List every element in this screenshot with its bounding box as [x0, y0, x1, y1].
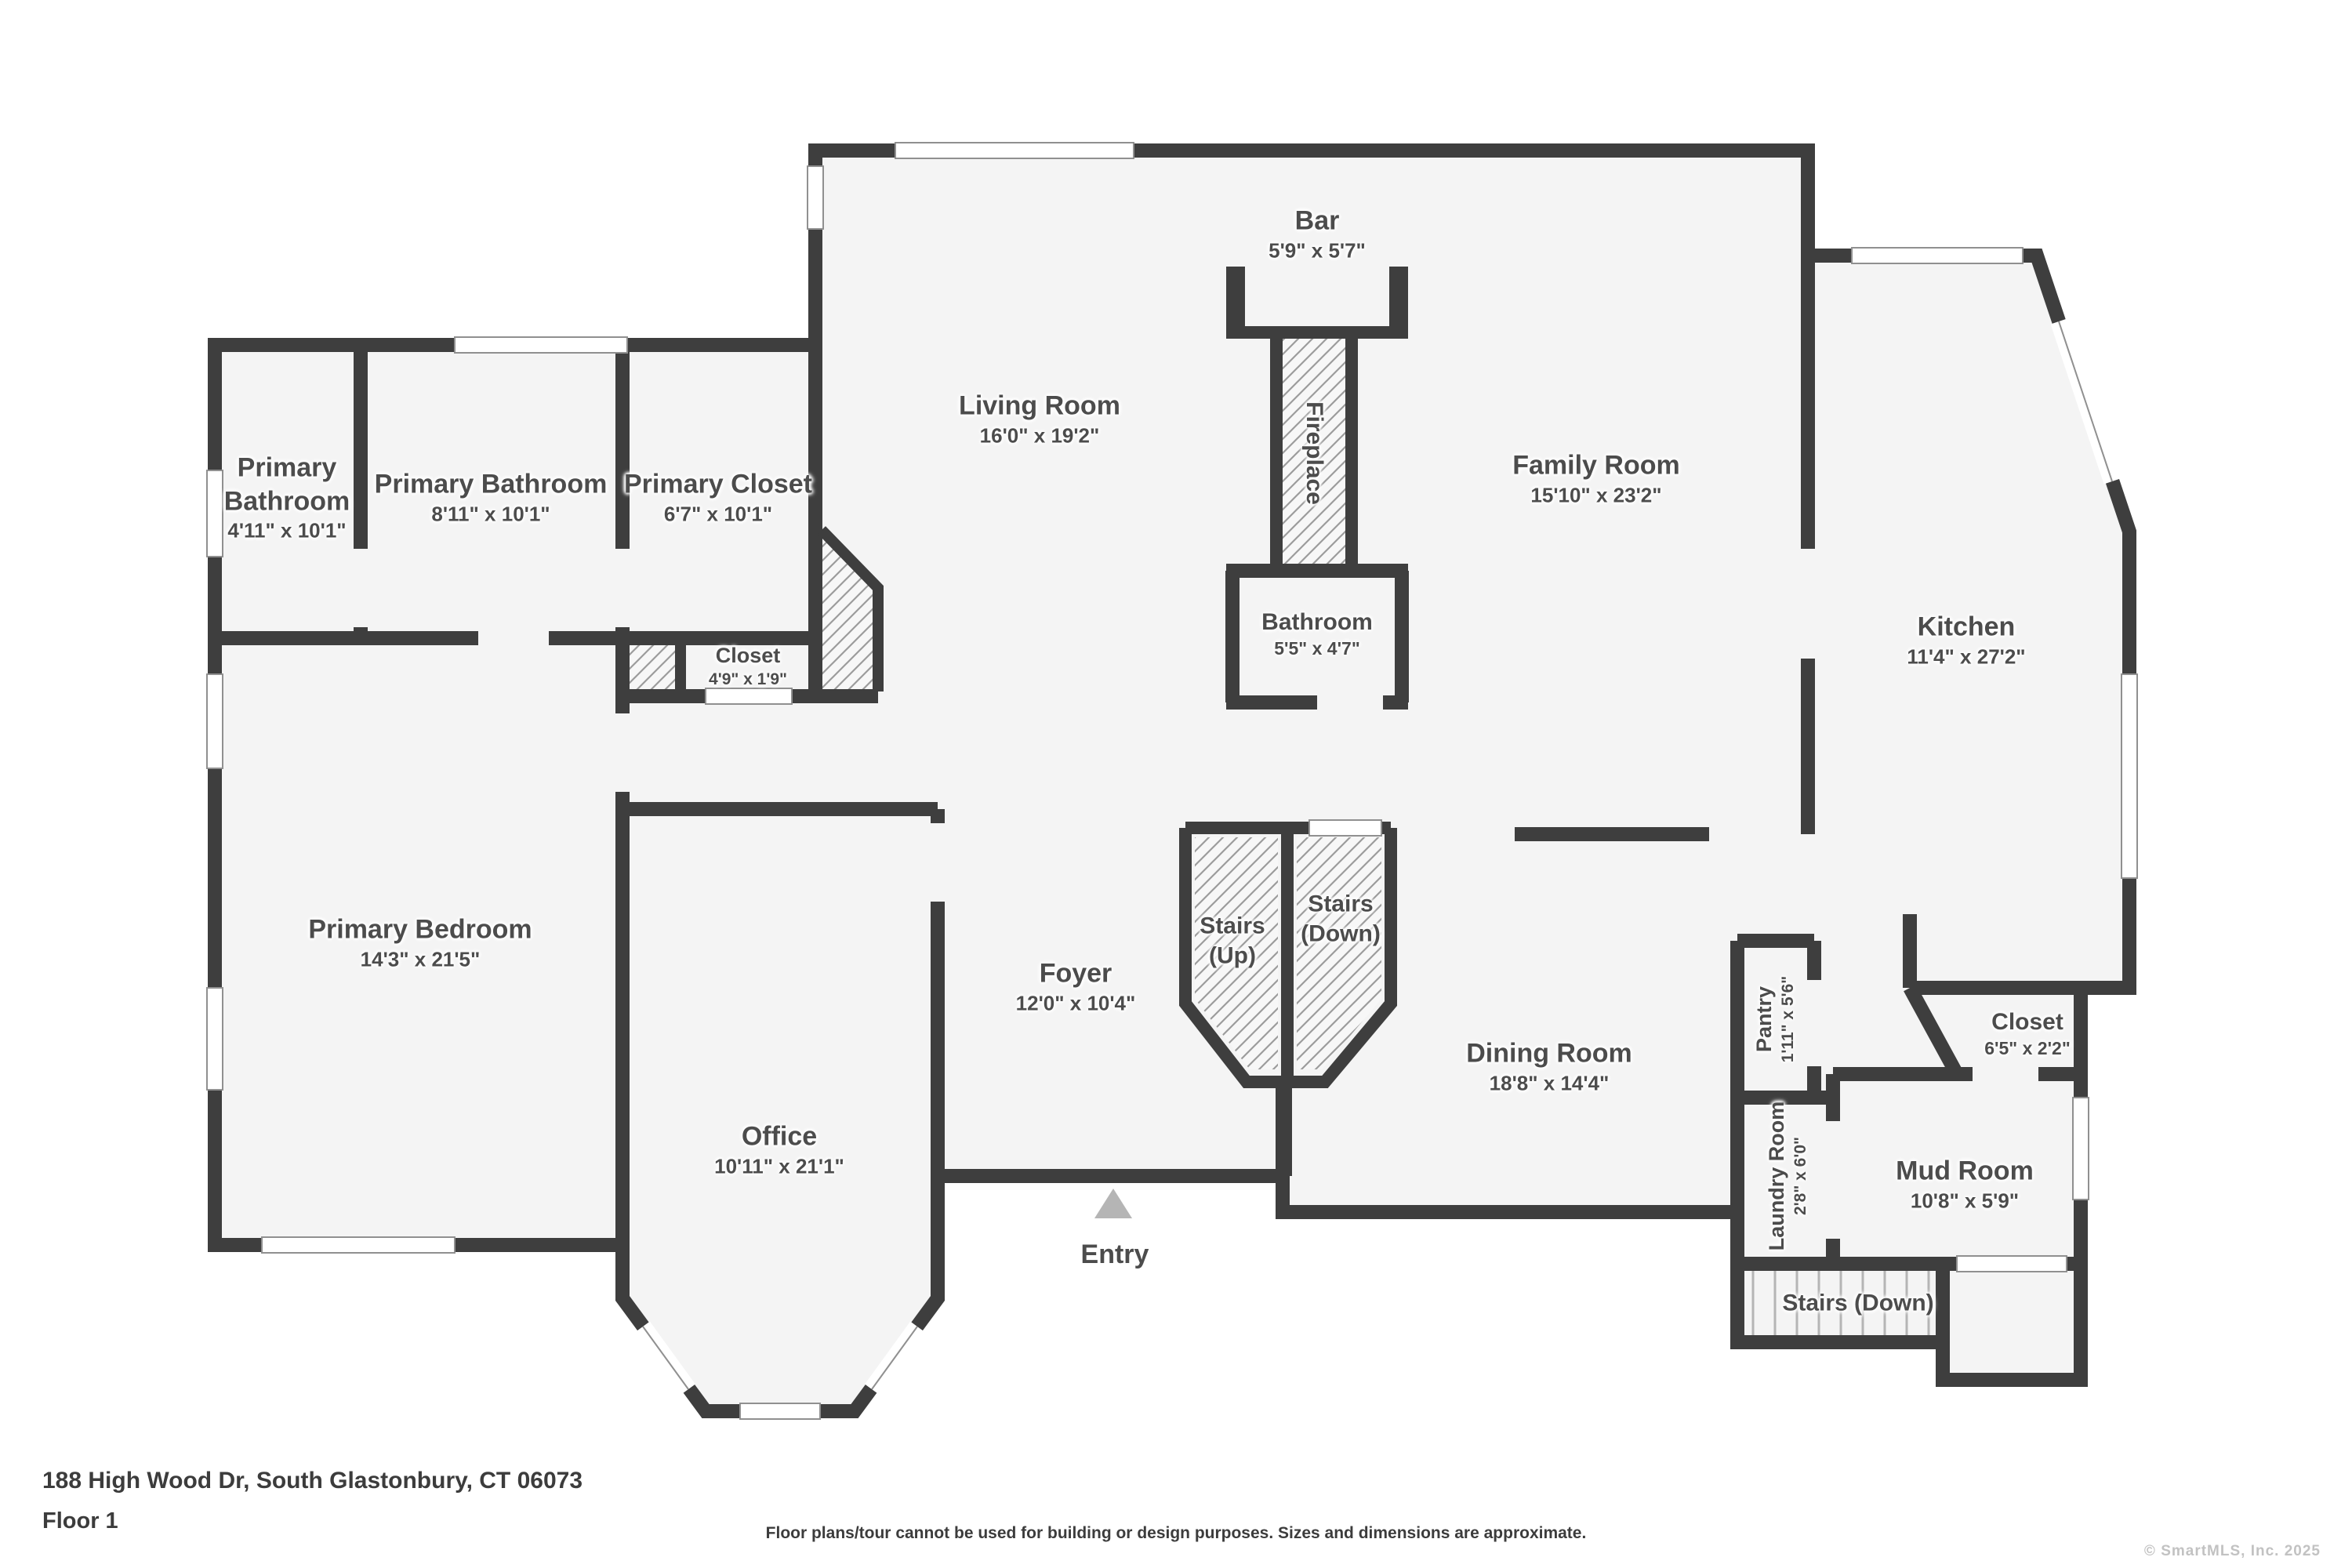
- small-chase-hatch: [627, 644, 681, 691]
- floor-plan-drawing: [0, 0, 2352, 1568]
- floor-plan-page: Bar 5'9" x 5'7" Living Room 16'0" x 19'2…: [0, 0, 2352, 1568]
- fireplace-hatch: [1283, 337, 1345, 571]
- watermark-text: © SmartMLS, Inc. 2025: [2144, 1543, 2321, 1560]
- entry-direction-icon: [1094, 1189, 1132, 1218]
- address-text: 188 High Wood Dr, South Glastonbury, CT …: [42, 1468, 583, 1494]
- disclaimer-text: Floor plans/tour cannot be used for buil…: [0, 1524, 2352, 1543]
